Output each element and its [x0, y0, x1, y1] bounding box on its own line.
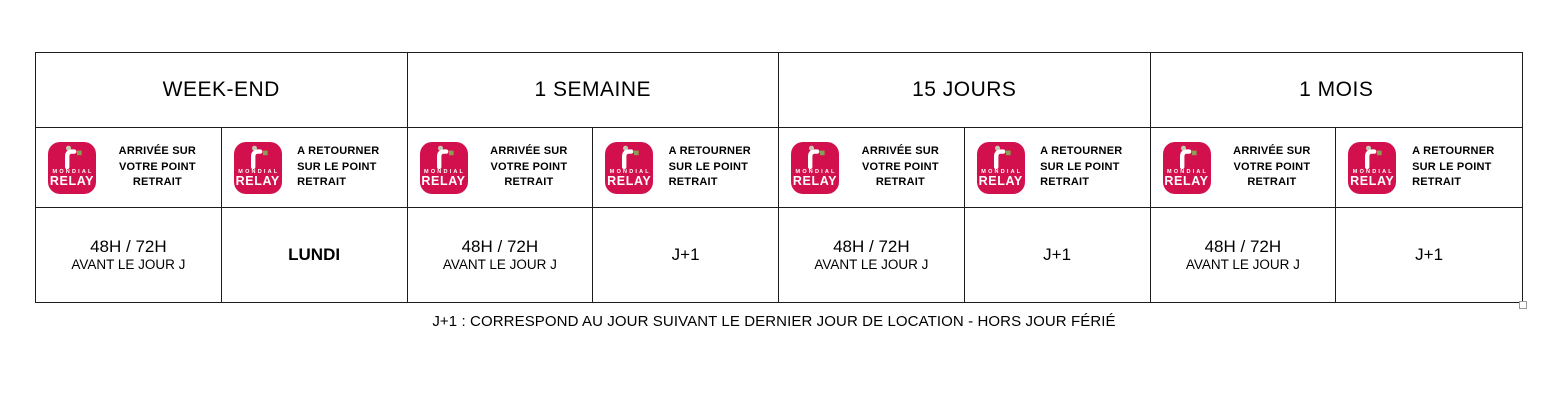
return-label-line: SUR LE POINT [1412, 160, 1504, 175]
pickup-label-line: VOTRE POINT RETRAIT [843, 160, 958, 191]
mondial-relay-logo: MONDIAL relay [234, 142, 282, 194]
pickup-value-cell: 48H / 72H AVANT LE JOUR J [36, 208, 222, 302]
pickup-value: 48H / 72H [1205, 236, 1282, 257]
pickup-label-line: ARRIVÉE SUR [490, 144, 567, 159]
logo-word-relay: relay [793, 175, 837, 189]
pickup-header-cell: MONDIAL relay ARRIVÉE SUR VOTRE POINT RE… [1151, 128, 1337, 208]
return-label-line: A RETOURNER [297, 144, 389, 159]
pickup-value-sub: AVANT LE JOUR J [443, 257, 557, 274]
return-header-cell: MONDIAL relay A RETOURNER SUR LE POINT R… [593, 128, 779, 208]
return-label-line: A RETOURNER [669, 144, 761, 159]
page: WEEK-END 1 SEMAINE 15 JOURS 1 MOIS MONDI… [0, 0, 1548, 400]
column-header-weekend: WEEK-END [36, 53, 408, 128]
return-header-cell: MONDIAL relay A RETOURNER SUR LE POINT R… [1336, 128, 1522, 208]
return-label-line: RETRAIT [1412, 175, 1504, 190]
return-label-line: RETRAIT [1040, 175, 1132, 190]
column-header-15-jours: 15 JOURS [779, 53, 1151, 128]
pickup-label-line: VOTRE POINT RETRAIT [1215, 160, 1330, 191]
pickup-label: ARRIVÉE SUR VOTRE POINT RETRAIT [100, 144, 215, 190]
mondial-relay-glyph-icon [1174, 145, 1200, 169]
pickup-label-line: ARRIVÉE SUR [119, 144, 196, 159]
pickup-label-line: ARRIVÉE SUR [1233, 144, 1310, 159]
pickup-label-line: VOTRE POINT RETRAIT [472, 160, 587, 191]
pickup-header-cell: MONDIAL relay ARRIVÉE SUR VOTRE POINT RE… [36, 128, 222, 208]
logo-word-relay: relay [50, 175, 94, 189]
logo-word-relay: relay [236, 175, 280, 189]
mondial-relay-glyph-icon [802, 145, 828, 169]
pickup-label: ARRIVÉE SUR VOTRE POINT RETRAIT [472, 144, 587, 190]
pickup-label-line: VOTRE POINT RETRAIT [100, 160, 215, 191]
mondial-relay-logo: MONDIAL relay [1163, 142, 1211, 194]
mondial-relay-glyph-icon [245, 145, 271, 169]
rental-delay-table: WEEK-END 1 SEMAINE 15 JOURS 1 MOIS MONDI… [35, 52, 1523, 303]
return-label-line: RETRAIT [669, 175, 761, 190]
return-value: J+1 [1415, 244, 1443, 265]
return-value-cell: LUNDI [222, 208, 408, 302]
return-header-cell: MONDIAL relay A RETOURNER SUR LE POINT R… [965, 128, 1151, 208]
mondial-relay-glyph-icon [1359, 145, 1385, 169]
logo-word-relay: relay [421, 175, 465, 189]
mondial-relay-logo: MONDIAL relay [48, 142, 96, 194]
logo-word-relay: relay [1164, 175, 1208, 189]
pickup-value: 48H / 72H [90, 236, 167, 257]
pickup-value: 48H / 72H [462, 236, 539, 257]
pickup-label-line: ARRIVÉE SUR [862, 144, 939, 159]
return-header-cell: MONDIAL relay A RETOURNER SUR LE POINT R… [222, 128, 408, 208]
mondial-relay-logo: MONDIAL relay [977, 142, 1025, 194]
return-label-line: A RETOURNER [1040, 144, 1132, 159]
return-value-cell: J+1 [1336, 208, 1522, 302]
return-label-line: SUR LE POINT [1040, 160, 1132, 175]
return-label-line: A RETOURNER [1412, 144, 1504, 159]
mondial-relay-logo: MONDIAL relay [791, 142, 839, 194]
logo-word-relay: relay [607, 175, 651, 189]
column-title: 1 MOIS [1299, 78, 1373, 102]
return-label-line: SUR LE POINT [297, 160, 389, 175]
logo-word-relay: relay [979, 175, 1023, 189]
mondial-relay-glyph-icon [59, 145, 85, 169]
column-title: 15 JOURS [912, 78, 1016, 102]
resize-handle[interactable] [1519, 301, 1527, 309]
column-title: WEEK-END [163, 78, 280, 102]
return-value-cell: J+1 [965, 208, 1151, 302]
mondial-relay-logo: MONDIAL relay [605, 142, 653, 194]
pickup-value-sub: AVANT LE JOUR J [1186, 257, 1300, 274]
return-value: J+1 [672, 244, 700, 265]
pickup-value-cell: 48H / 72H AVANT LE JOUR J [408, 208, 594, 302]
return-label: A RETOURNER SUR LE POINT RETRAIT [286, 144, 401, 190]
pickup-header-cell: MONDIAL relay ARRIVÉE SUR VOTRE POINT RE… [408, 128, 594, 208]
pickup-label: ARRIVÉE SUR VOTRE POINT RETRAIT [1215, 144, 1330, 190]
return-label: A RETOURNER SUR LE POINT RETRAIT [1029, 144, 1144, 190]
pickup-value-cell: 48H / 72H AVANT LE JOUR J [1151, 208, 1337, 302]
column-title: 1 SEMAINE [534, 78, 651, 102]
footnote: J+1 : CORRESPOND AU JOUR SUIVANT LE DERN… [0, 313, 1548, 330]
mondial-relay-glyph-icon [988, 145, 1014, 169]
column-header-1-mois: 1 MOIS [1151, 53, 1523, 128]
mondial-relay-glyph-icon [616, 145, 642, 169]
column-header-1-semaine: 1 SEMAINE [408, 53, 780, 128]
pickup-value-sub: AVANT LE JOUR J [71, 257, 185, 274]
return-value: J+1 [1043, 244, 1071, 265]
mondial-relay-glyph-icon [431, 145, 457, 169]
return-value: LUNDI [288, 244, 340, 265]
mondial-relay-logo: MONDIAL relay [420, 142, 468, 194]
return-label-line: SUR LE POINT [669, 160, 761, 175]
return-label: A RETOURNER SUR LE POINT RETRAIT [657, 144, 772, 190]
logo-word-relay: relay [1350, 175, 1394, 189]
pickup-label: ARRIVÉE SUR VOTRE POINT RETRAIT [843, 144, 958, 190]
pickup-value-cell: 48H / 72H AVANT LE JOUR J [779, 208, 965, 302]
pickup-header-cell: MONDIAL relay ARRIVÉE SUR VOTRE POINT RE… [779, 128, 965, 208]
pickup-value: 48H / 72H [833, 236, 910, 257]
return-label-line: RETRAIT [297, 175, 389, 190]
return-label: A RETOURNER SUR LE POINT RETRAIT [1400, 144, 1516, 190]
return-value-cell: J+1 [593, 208, 779, 302]
pickup-value-sub: AVANT LE JOUR J [814, 257, 928, 274]
mondial-relay-logo: MONDIAL relay [1348, 142, 1396, 194]
